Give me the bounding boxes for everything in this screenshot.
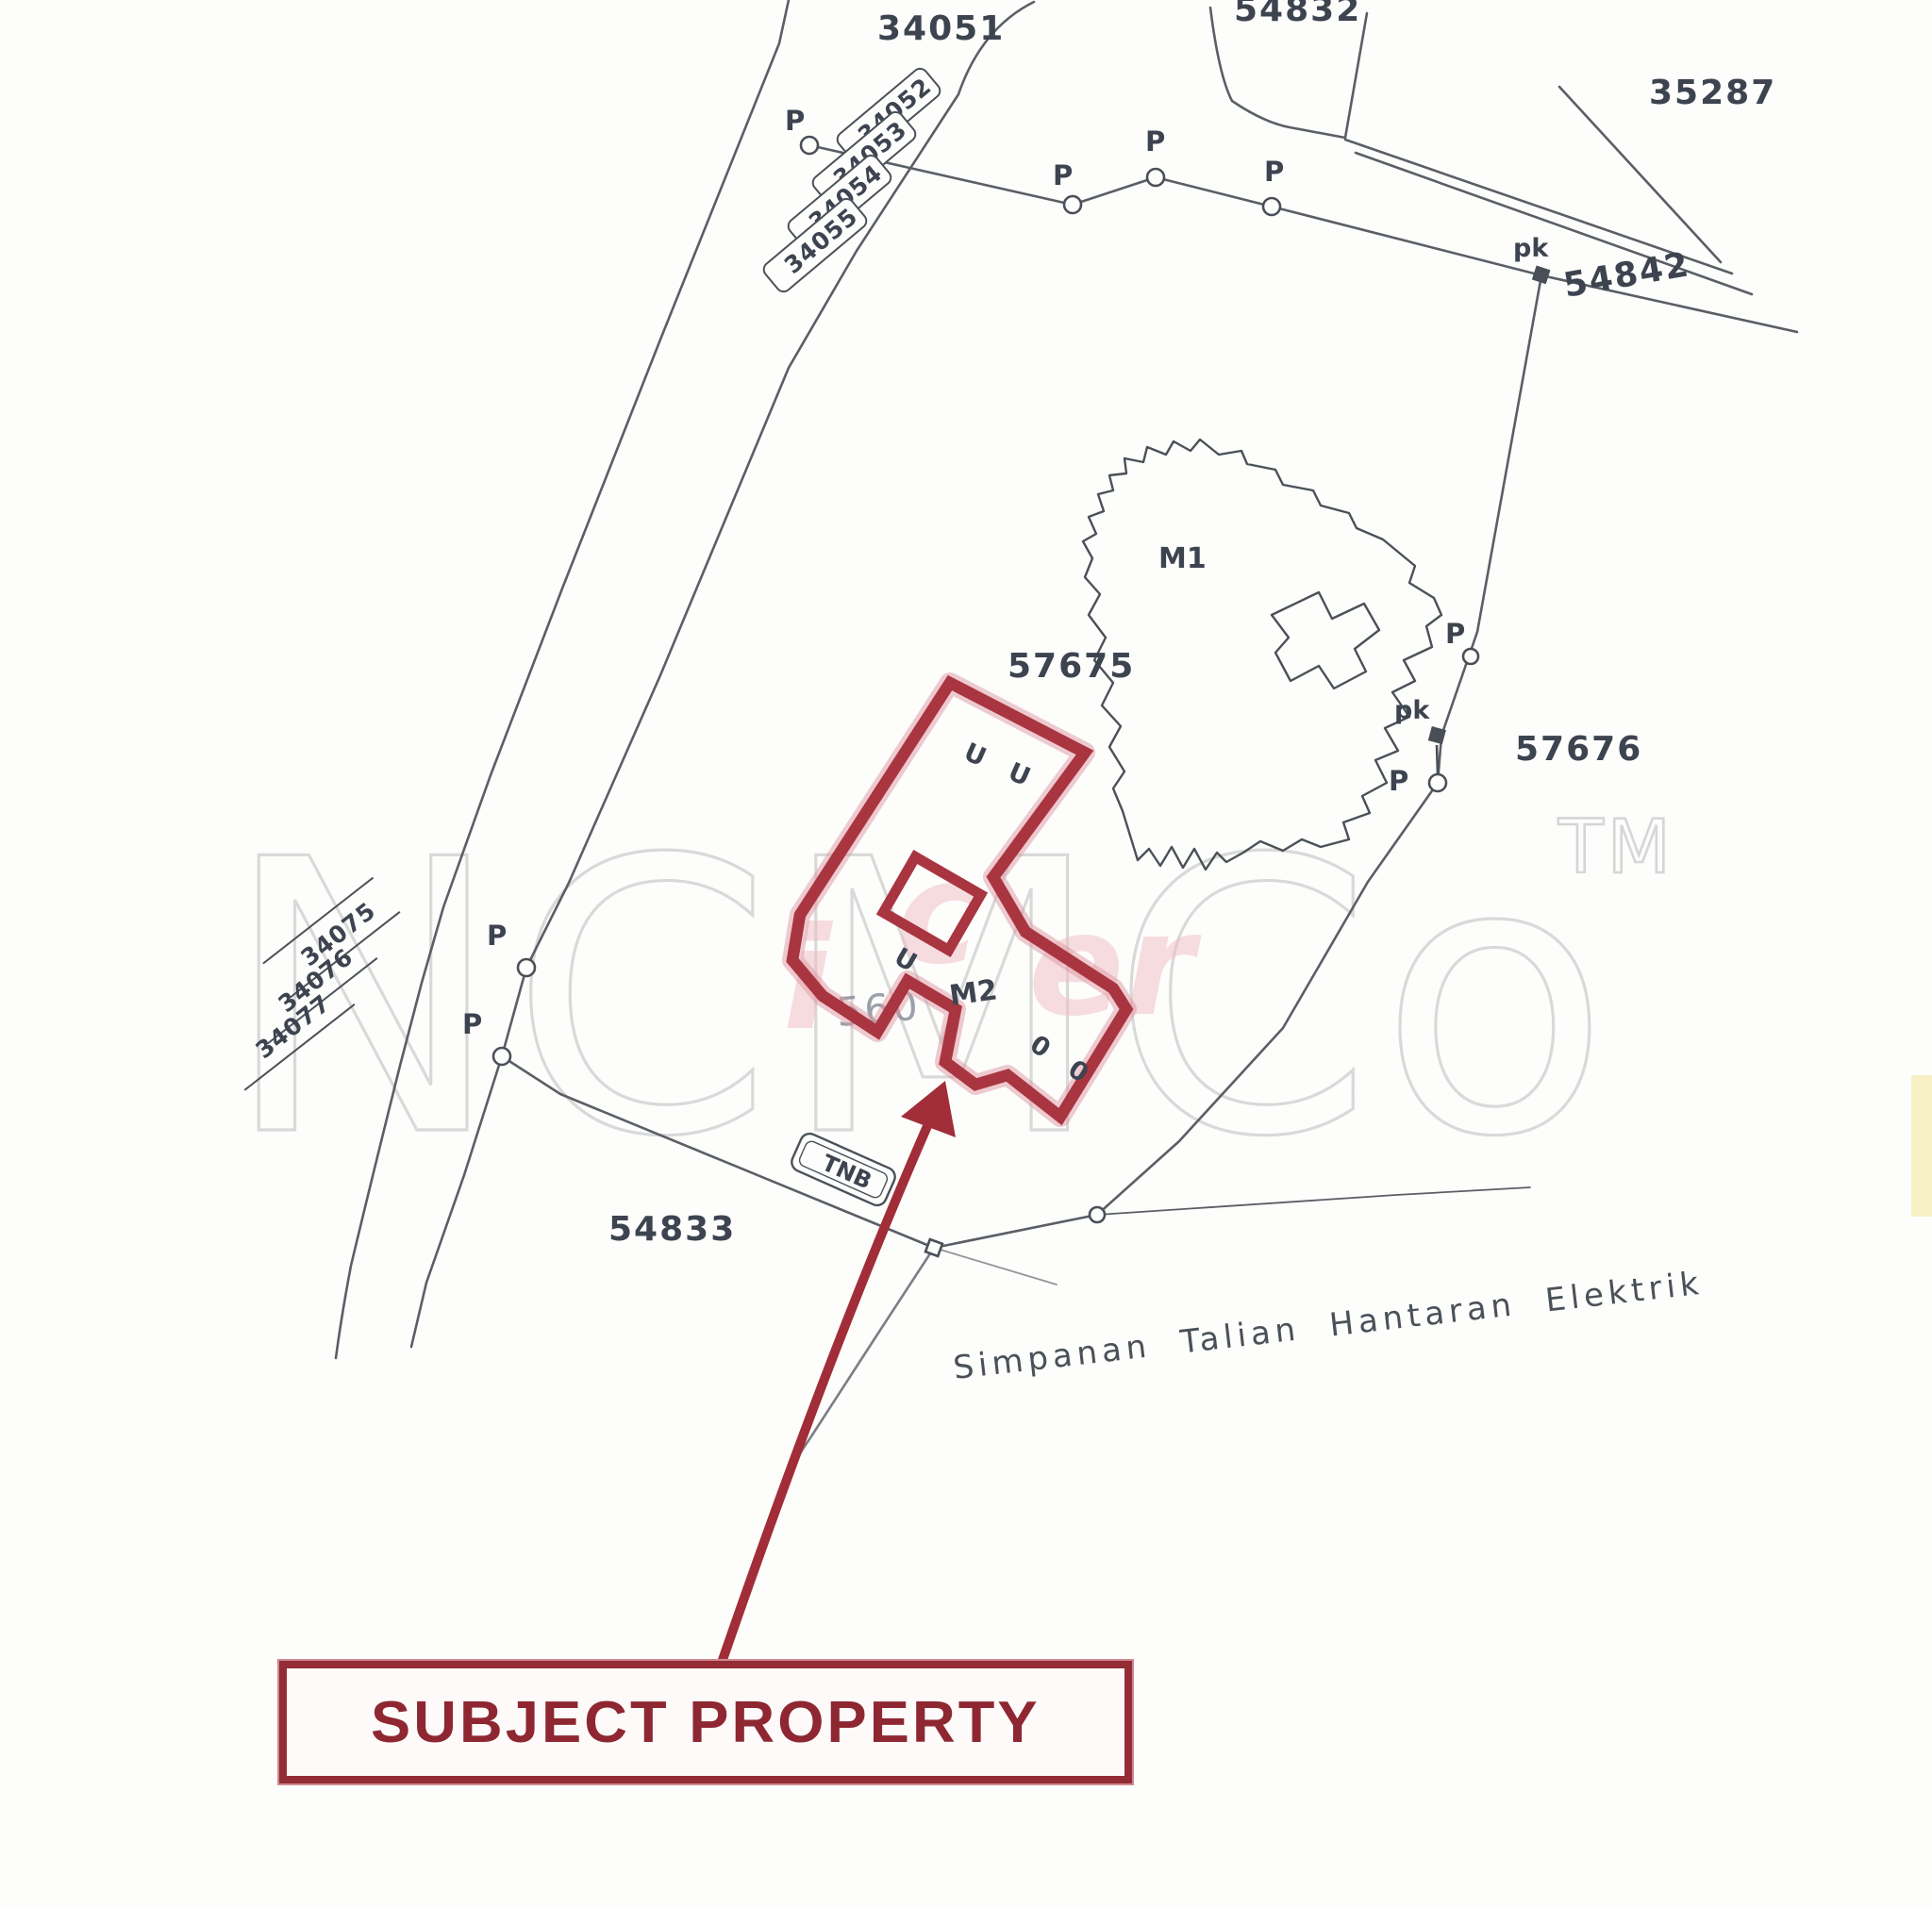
vertex-circle <box>1429 774 1446 791</box>
marker-p: P <box>1264 156 1284 188</box>
road-54842-lower <box>1356 153 1752 294</box>
marker-p: P <box>487 920 507 952</box>
marker-p: P <box>785 105 805 137</box>
marker-p: P <box>1445 618 1465 650</box>
lot-label-54833: 54833 <box>608 1210 736 1249</box>
boundary-north <box>809 145 1797 332</box>
marker-pk: pk <box>1513 234 1549 263</box>
building-m1-inner-wing <box>1272 592 1379 688</box>
watermark-layer: NCMCo TM i c er 560 <box>222 781 1932 1219</box>
lot-label-34051: 34051 <box>877 9 1005 48</box>
vertex-peg-filled <box>1429 728 1444 743</box>
building-label-m2: M2 <box>947 973 999 1013</box>
boundary-south <box>934 1215 1097 1248</box>
marker-p: P <box>1145 125 1165 158</box>
cadastral-map: NCMCo TM i c er 560 <box>0 0 1932 1907</box>
lot-label-57676: 57676 <box>1515 730 1642 769</box>
lot-label-35287: 35287 <box>1649 74 1776 112</box>
lot-label-57675: 57675 <box>1008 647 1135 686</box>
vertex-circle <box>1090 1207 1105 1222</box>
vertex-circle <box>1147 169 1164 186</box>
marker-pk: pk <box>1394 696 1430 725</box>
vertex-circle <box>518 959 535 976</box>
marker-p: P <box>462 1008 482 1040</box>
electric-reserve-note: Simpanan Talian Hantaran Elektrik <box>951 1265 1705 1387</box>
subject-property-label: SUBJECT PROPERTY <box>371 1689 1041 1756</box>
vertex-tick <box>1437 745 1438 773</box>
vertex-circle <box>493 1048 510 1065</box>
subject-property-callout: SUBJECT PROPERTY <box>279 1661 1132 1783</box>
vertex-circle <box>1463 649 1478 664</box>
boundary-54832-stem <box>1345 13 1367 138</box>
vertex-peg-filled <box>1533 267 1548 282</box>
scan-artifact-yellow <box>1911 1075 1932 1217</box>
vertex-circle <box>1263 198 1280 215</box>
vertex-circle <box>1064 196 1081 213</box>
watermark-tm: TM <box>1557 805 1674 890</box>
vertex-circle <box>801 137 818 154</box>
boundary-35287 <box>1559 87 1721 262</box>
building-label-m1: M1 <box>1158 542 1207 575</box>
marker-p: P <box>1389 765 1408 797</box>
corridor-line-lower <box>934 1248 1057 1285</box>
lot-label-54832: 54832 <box>1234 0 1361 29</box>
lot-label-54842: 54842 <box>1560 245 1692 306</box>
vertex-square-open <box>925 1239 942 1256</box>
survey-plan-page: NCMCo TM i c er 560 <box>0 0 1932 1907</box>
marker-p: P <box>1053 159 1073 191</box>
